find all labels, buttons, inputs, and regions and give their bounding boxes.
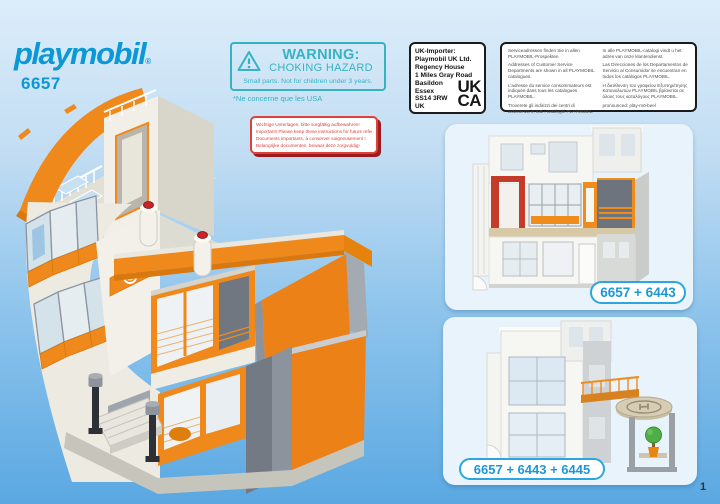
page-number: 1: [700, 481, 706, 493]
ukca-mark: UK CA: [457, 80, 481, 108]
combination-label-6657-6443-6445: 6657 + 6443 + 6445: [459, 458, 605, 480]
uk-importer-box: UK-Importer: Playmobil UK Ltd. Regency H…: [409, 42, 486, 114]
warning-subtitle: CHOKING HAZARD: [262, 63, 380, 74]
combination-card-6657-6443: 6657 + 6443: [445, 124, 693, 310]
combination-card-6657-6443-6445: 6657 + 6443 + 6445: [443, 317, 697, 485]
combination-label-6657-6443: 6657 + 6443: [590, 281, 686, 304]
roof-vent-light: [140, 202, 157, 247]
service-address-box: Serviceadressen finden Sie in allen PLAY…: [500, 42, 697, 112]
warning-title: WARNING:: [262, 48, 380, 63]
registered-mark: ®: [145, 57, 151, 66]
warning-triangle-icon: [236, 50, 262, 72]
roof-vent-light: [194, 232, 211, 277]
potted-tree: [646, 427, 662, 457]
hospital-building-illustration: [8, 84, 380, 496]
playmobil-logo: playmobil®: [14, 36, 151, 72]
